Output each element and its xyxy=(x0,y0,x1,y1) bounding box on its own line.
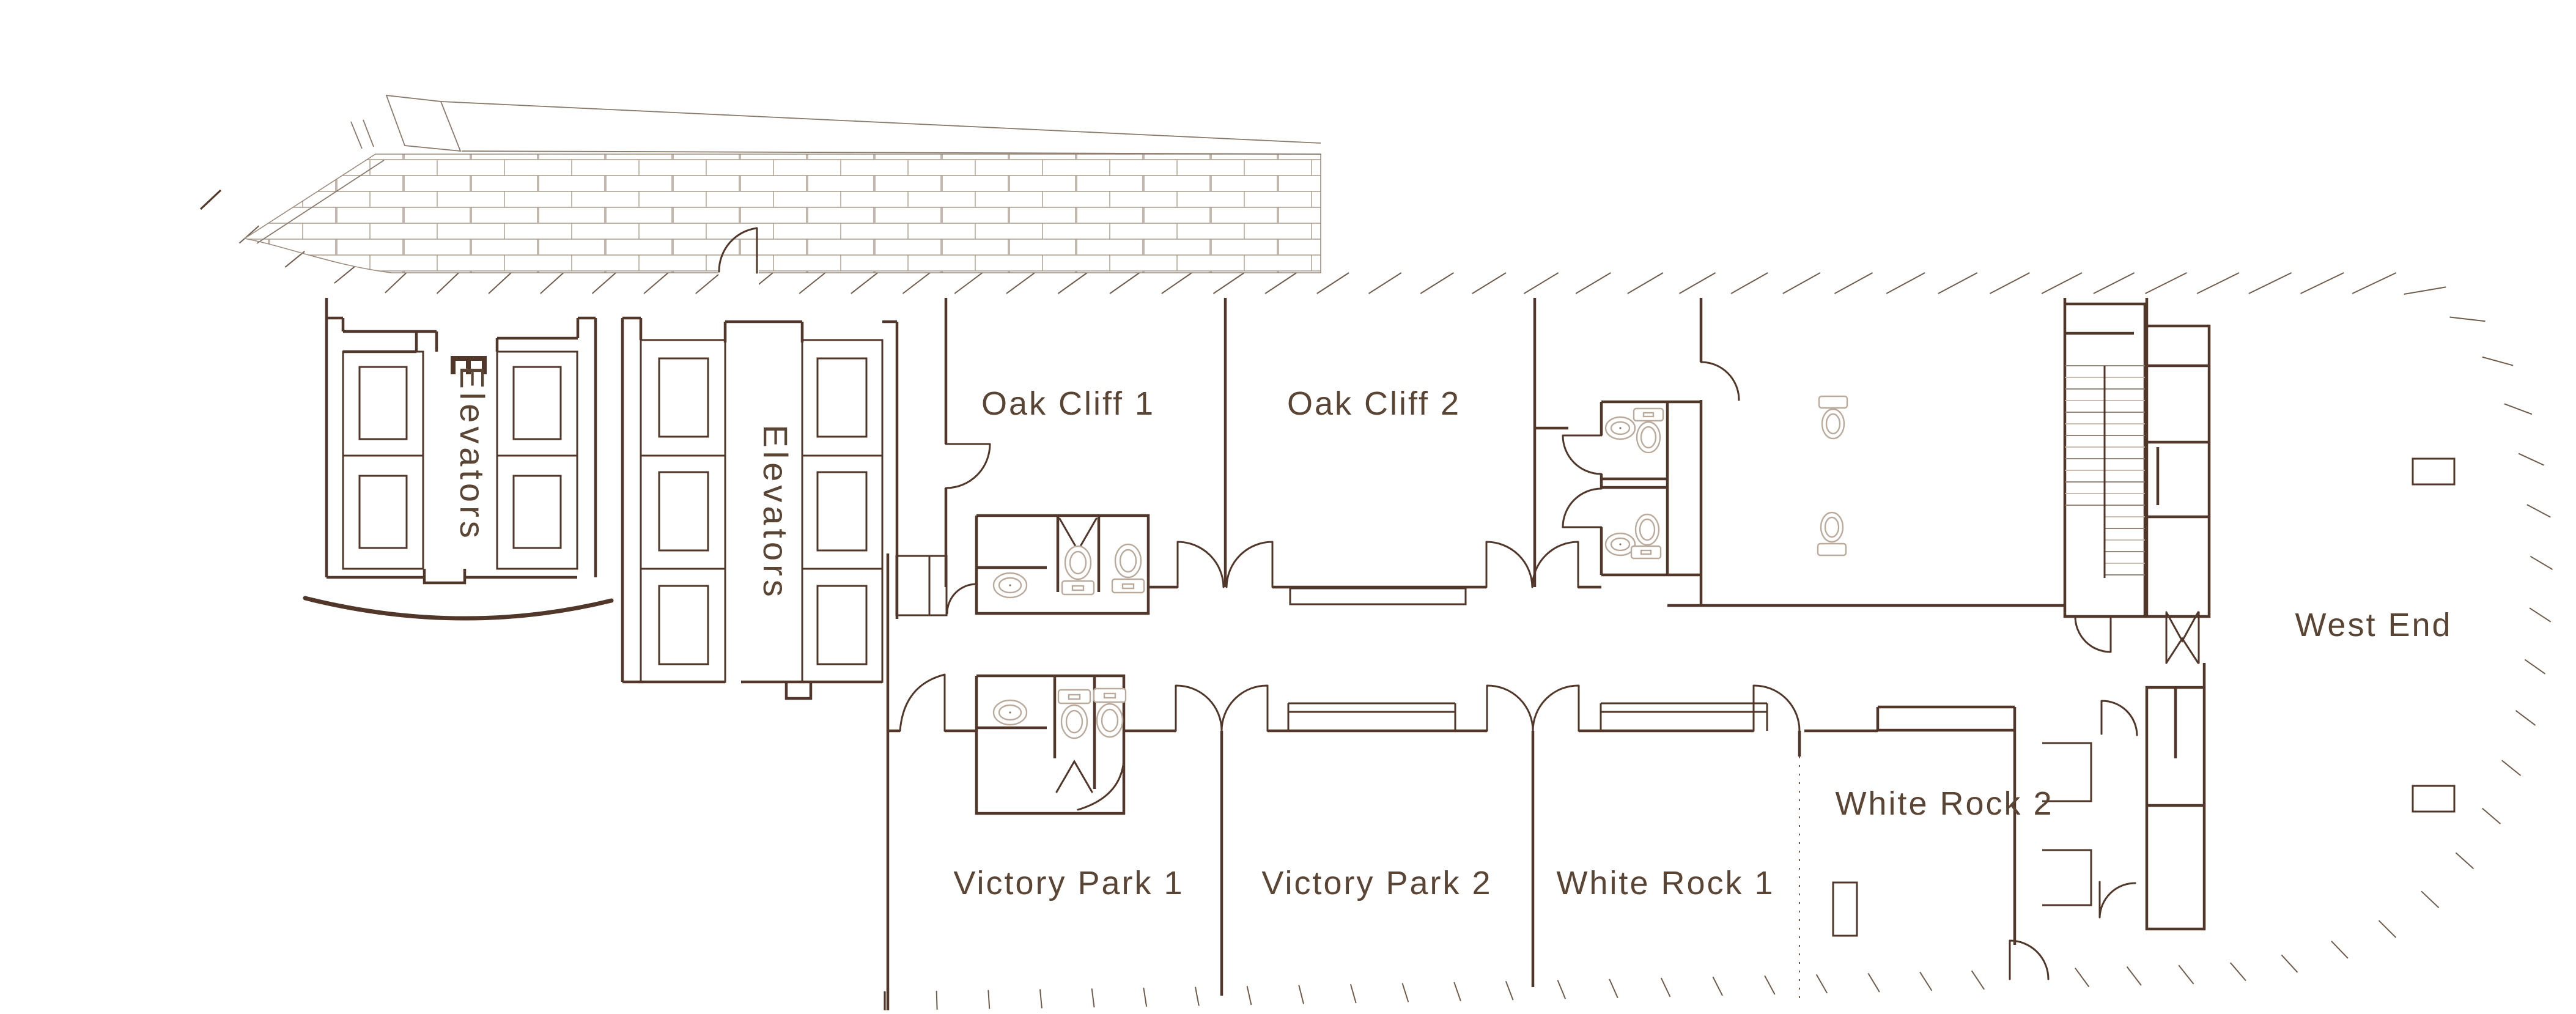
curtain-wall-tick xyxy=(1351,984,1356,1003)
curtain-wall-tick xyxy=(334,267,355,283)
elevator-car xyxy=(514,367,561,439)
door-arc xyxy=(1078,760,1124,810)
elevator-car xyxy=(360,476,407,548)
door-arc xyxy=(900,675,945,731)
door-arc xyxy=(946,444,990,488)
curtain-wall-tick xyxy=(1938,273,1977,294)
curtain-wall-tick xyxy=(1990,273,2029,294)
canopy-tower xyxy=(351,95,460,151)
curtain-wall-tick xyxy=(1213,273,1244,294)
elevator-car xyxy=(659,586,708,664)
curtain-wall-tick xyxy=(2482,357,2513,366)
curtain-wall-tick xyxy=(437,273,459,294)
curtain-wall-tick xyxy=(696,273,721,294)
room-label-oak-cliff-1: Oak Cliff 1 xyxy=(981,385,1155,422)
curtain-wall-tick xyxy=(2352,273,2396,294)
room-label-victory-park-1: Victory Park 1 xyxy=(953,865,1184,901)
staircase xyxy=(2065,298,2209,929)
curtain-wall-tick xyxy=(2515,711,2535,725)
curtain-wall-tick xyxy=(2042,273,2082,294)
toilet-icon xyxy=(1818,513,1846,555)
curtain-wall-tick xyxy=(988,990,989,1009)
door-arc xyxy=(2100,882,2135,917)
column xyxy=(2413,786,2454,812)
curtain-wall-tick xyxy=(2502,760,2521,775)
curtain-wall-tick xyxy=(2527,505,2550,517)
toilet-icon xyxy=(1631,514,1661,558)
curtain-wall-tick xyxy=(1972,971,1984,990)
curtain-wall-tick xyxy=(1265,273,1296,294)
curtain-wall-tick xyxy=(2379,920,2396,938)
elevator-car xyxy=(514,476,561,548)
toilet-icon xyxy=(1112,544,1144,593)
curtain-wall-tick xyxy=(2404,287,2446,294)
curtain-wall-tick xyxy=(2249,273,2292,294)
curtain-wall-tick xyxy=(1162,273,1192,294)
sink-icon xyxy=(994,573,1027,598)
door-arc xyxy=(2075,616,2111,652)
curtain-wall-tick xyxy=(1006,273,1035,294)
curtain-wall-tick xyxy=(1472,273,1506,294)
curtain-wall-tick xyxy=(1886,273,1925,294)
curtain-wall-tick xyxy=(1110,273,1139,294)
curtain-wall-tick xyxy=(799,273,825,294)
curtain-wall-tick xyxy=(2456,853,2473,868)
curtain-wall-tick xyxy=(1920,972,1932,991)
curtain-wall-tick xyxy=(2449,317,2485,321)
curtain-wall-tick xyxy=(1628,273,1663,294)
elevator-car xyxy=(659,358,708,437)
door-arc xyxy=(1176,686,1268,731)
curtain-wall-tick xyxy=(2127,967,2141,986)
curtain-wall-tick xyxy=(937,991,937,1010)
door-arc xyxy=(1486,542,1578,587)
canopy-edge xyxy=(441,102,1321,154)
curtain-wall-tick xyxy=(2231,963,2246,980)
curtain-wall-tick xyxy=(2504,404,2532,414)
curtain-wall-tick xyxy=(2331,941,2348,958)
plumbing-fixtures xyxy=(994,396,1847,738)
service-shaft xyxy=(2147,663,2204,929)
curtain-wall-tick xyxy=(285,251,304,267)
curtain-wall-tick xyxy=(1661,978,1670,997)
curtain-wall-tick xyxy=(1040,990,1042,1008)
floor-plan-page: Elevators Elevators xyxy=(0,0,2576,1014)
curtain-wall-tick xyxy=(1247,986,1252,1005)
elevator-car xyxy=(817,472,866,550)
curtain-wall-tick xyxy=(1299,985,1304,1004)
room-label-oak-cliff-2: Oak Cliff 2 xyxy=(1287,385,1461,422)
curtain-wall-tick xyxy=(2482,809,2501,824)
curtain-wall-tick xyxy=(2300,273,2344,294)
exterior-door-gap xyxy=(2006,945,2050,989)
curtain-wall-tick xyxy=(385,273,407,293)
curtain-wall-tick xyxy=(1420,273,1453,294)
curtain-wall-tick xyxy=(2075,968,2089,987)
elevator-bank-2: Elevators xyxy=(622,318,897,698)
elevator-car xyxy=(817,586,866,664)
toilet-icon xyxy=(1094,689,1126,737)
curtain-wall-tick xyxy=(1506,981,1513,1000)
sink-icon xyxy=(994,700,1027,725)
elevator-car xyxy=(659,472,708,550)
curtain-wall-tick xyxy=(592,273,616,294)
room-label-white-rock-2: White Rock 2 xyxy=(1835,785,2053,822)
curtain-wall-tick xyxy=(541,273,564,294)
curtain-wall-tick xyxy=(1765,975,1775,994)
toilet-icon xyxy=(1058,690,1090,738)
floor-plan-drawing: Elevators Elevators xyxy=(0,0,2576,1014)
curtain-wall-tick xyxy=(644,273,668,294)
curtain-wall-tick xyxy=(1368,273,1401,294)
curtain-wall-tick xyxy=(1679,273,1715,294)
curtain-wall-tick xyxy=(1195,987,1199,1006)
casework-counter xyxy=(896,556,1466,615)
toilet-icon xyxy=(1634,409,1663,453)
curtain-wall-tick xyxy=(1058,273,1087,294)
curtain-wall-tick xyxy=(1317,273,1349,294)
curtain-wall-tick xyxy=(1576,273,1611,294)
podium xyxy=(1833,883,1857,936)
elevator-bank-1: Elevators xyxy=(327,298,596,583)
curtain-wall-tick xyxy=(851,273,878,294)
curtain-wall-tick xyxy=(1143,988,1146,1007)
door-arc xyxy=(1487,686,1579,731)
curtain-wall-tick xyxy=(2281,955,2297,972)
brick-paving xyxy=(245,154,1321,273)
bifold-door xyxy=(2166,612,2199,663)
elevator-bank-1-label: Elevators xyxy=(453,366,492,541)
curtain-wall-tick xyxy=(2094,273,2135,294)
elevator-car xyxy=(360,367,407,439)
curtain-wall-tick xyxy=(902,273,930,294)
curtain-wall-tick xyxy=(1731,273,1768,294)
curtain-wall-tick xyxy=(1868,973,1880,992)
room-label-white-rock-1: White Rock 1 xyxy=(1556,865,1774,901)
curtain-wall-tick xyxy=(1557,980,1565,999)
doors xyxy=(900,362,2199,917)
curtain-wall-tick xyxy=(1817,974,1828,993)
curtain-wall-tick xyxy=(1092,988,1094,1007)
curtain-wall-tick xyxy=(489,273,511,294)
elevator-bank-2-label: Elevators xyxy=(756,424,795,600)
curtain-wall-tick xyxy=(2179,965,2193,984)
curtain-wall-tick xyxy=(2421,891,2438,908)
door-arc xyxy=(1563,489,1601,527)
room-label-victory-park-2: Victory Park 2 xyxy=(1261,865,1492,901)
column xyxy=(2413,459,2454,484)
room-labels: Oak Cliff 1 Oak Cliff 2 Victory Park 1 V… xyxy=(953,385,2452,901)
door-arc xyxy=(1701,362,1739,400)
curtain-wall-tick xyxy=(2197,273,2239,294)
curtain-wall-tick xyxy=(2145,273,2187,294)
curtain-wall-tick xyxy=(1783,273,1820,294)
curtain-wall-tick xyxy=(2530,608,2551,622)
curtain-wall-tick xyxy=(2530,557,2552,570)
terrace-door-gap xyxy=(718,265,759,300)
curtain-wall-tick xyxy=(954,273,982,294)
entry-swoosh-line xyxy=(305,598,611,618)
curtain-wall-tick xyxy=(2525,659,2545,673)
door-arc xyxy=(2102,701,2137,735)
curtain-wall-tick xyxy=(1609,979,1618,998)
room-label-west-end: West End xyxy=(2295,607,2452,643)
curtain-wall-tick xyxy=(1403,983,1409,1002)
door-arc xyxy=(947,584,976,613)
curtain-wall-tick xyxy=(1713,977,1722,996)
toilet-icon xyxy=(1062,546,1094,594)
elevator-car xyxy=(817,358,866,437)
curtain-wall-tick xyxy=(1834,273,1872,294)
toilet-icon xyxy=(1819,396,1847,439)
brick-terrace xyxy=(245,95,1321,273)
curtain-wall-tick xyxy=(2519,454,2544,465)
sink-icon xyxy=(1606,417,1635,439)
curtain-wall-tick xyxy=(1454,982,1461,1001)
curtain-wall-tick xyxy=(1524,273,1558,294)
door-arc xyxy=(1754,686,1799,731)
door-arc xyxy=(1563,435,1601,474)
